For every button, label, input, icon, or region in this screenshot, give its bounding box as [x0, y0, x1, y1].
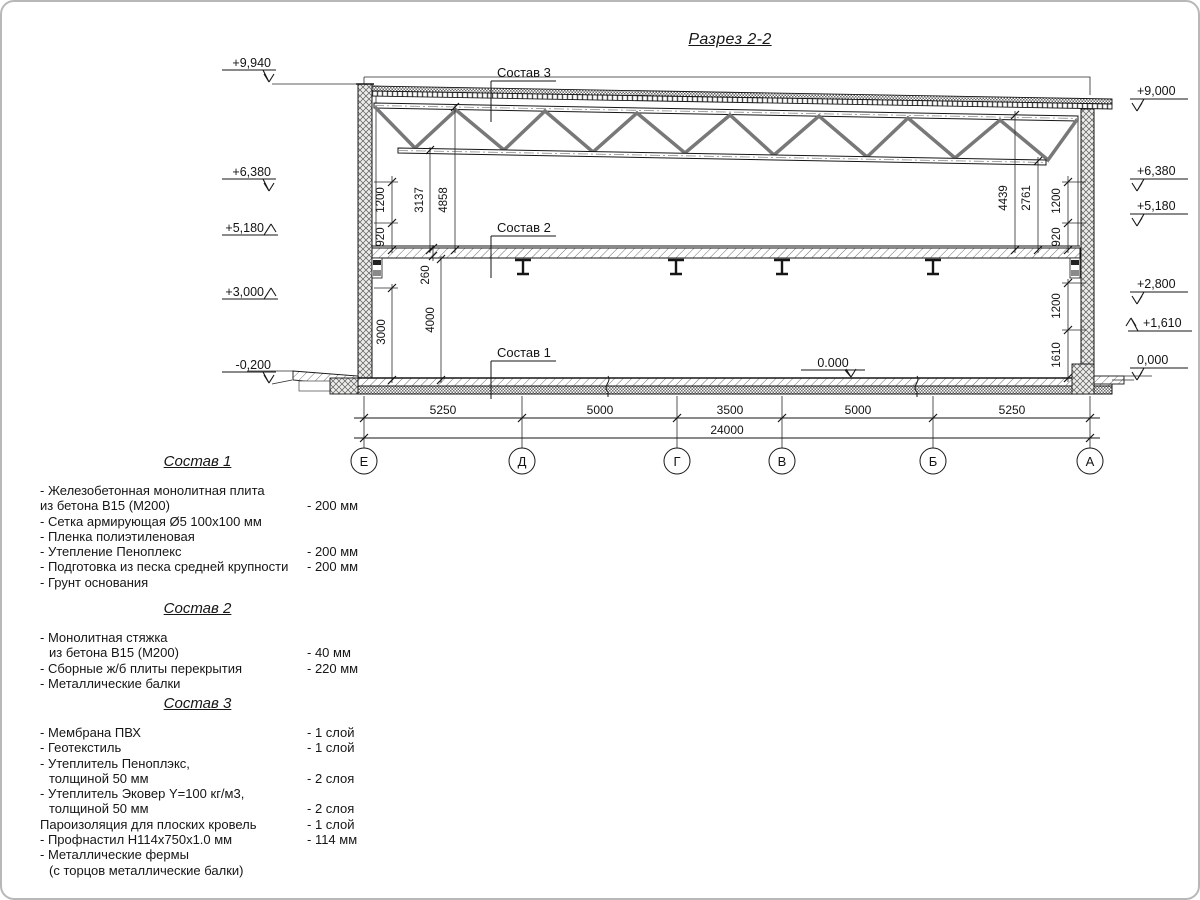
spec-row: - Сборные ж/б плиты перекрытия- 220 мм — [40, 661, 355, 676]
floor-zero-mark: 0.000 — [801, 356, 865, 377]
elevation-marks-right: +9,000 +6,380 +5,180 +2,800 +1,610 0,000 — [1112, 84, 1192, 380]
spec-item-value: - 220 мм — [307, 661, 358, 676]
elevation-mark: 0,000 — [1137, 353, 1168, 367]
steel-beam — [925, 260, 941, 274]
spec-row: - Металлические фермы — [40, 847, 355, 862]
elevation-mark: +6,380 — [1137, 164, 1176, 178]
spec-item-text: - Металлические фермы — [40, 847, 189, 862]
spec-row: толщиной 50 мм- 2 слоя — [40, 801, 355, 816]
dim-label: 5250 — [999, 403, 1026, 417]
spec-item-text: из бетона В15 (М200) — [40, 498, 170, 513]
dim-label: 4858 — [438, 187, 450, 213]
dim-label: 5000 — [845, 403, 872, 417]
spec-item-value: - 1 слой — [307, 740, 355, 755]
spec-item-text: толщиной 50 мм — [40, 771, 149, 786]
spec-block-sostav-1: Состав 1 - Железобетонная монолитная пли… — [40, 453, 355, 590]
spec-item-text: (с торцов металлические балки) — [40, 863, 244, 878]
spec-row: - Утеплитель Пеноплэкс, — [40, 756, 355, 771]
spec-item-text: Пароизоляция для плоских кровель — [40, 817, 257, 832]
dim-label: 920 — [375, 227, 387, 246]
spec-item-text: - Монолитная стяжка — [40, 630, 168, 645]
steel-beam — [515, 260, 531, 274]
dim-label: 1200 — [1051, 293, 1063, 319]
elevation-mark: +3,000 — [225, 285, 264, 299]
axis-bubbles: Е Д Г В Б А — [351, 448, 1103, 474]
spec-item-value: - 200 мм — [307, 498, 358, 513]
dim-label: 4000 — [425, 307, 437, 333]
spec-row: - Грунт основания — [40, 575, 355, 590]
elevation-mark: +1,610 — [1143, 316, 1182, 330]
spec-row: - Железобетонная монолитная плита — [40, 483, 355, 498]
elevation-mark: +9,940 — [232, 56, 271, 70]
dim-label: 260 — [420, 265, 432, 284]
left-wall — [356, 84, 376, 380]
floor-slab — [372, 246, 1080, 278]
dim-label: 3500 — [717, 403, 744, 417]
spec-row: - Утеплитель Эковер Y=100 кг/м3, — [40, 786, 355, 801]
elevation-mark: -0,200 — [236, 358, 271, 372]
elevation-mark: +6,380 — [232, 165, 271, 179]
spec-row: - Монолитная стяжка — [40, 630, 355, 645]
spec-item-text: - Пленка полиэтиленовая — [40, 529, 195, 544]
axis-label: Е — [360, 454, 369, 469]
spec-item-value: - 200 мм — [307, 559, 358, 574]
elevation-mark: 0.000 — [817, 356, 848, 370]
steel-beam — [774, 260, 790, 274]
dim-label: 1200 — [375, 187, 387, 213]
spec-item-text: толщиной 50 мм — [40, 801, 149, 816]
dims-bottom: 5250 5000 3500 5000 5250 24000 — [354, 396, 1100, 448]
elevation-mark: +5,180 — [1137, 199, 1176, 213]
spec-item-text: из бетона В15 (М200) — [40, 645, 179, 660]
spec-item-text: - Геотекстиль — [40, 740, 121, 755]
spec-row: - Профнастил Н114х750х1.0 мм- 114 мм — [40, 832, 355, 847]
spec-heading: Состав 2 — [40, 600, 355, 617]
right-wall — [1078, 109, 1094, 372]
dim-label: 1200 — [1051, 188, 1063, 214]
dim-label: 5000 — [587, 403, 614, 417]
spec-row: Пароизоляция для плоских кровель- 1 слой — [40, 817, 355, 832]
spec-item-text: - Сетка армирующая Ø5 100х100 мм — [40, 514, 262, 529]
elevation-mark: +9,000 — [1137, 84, 1176, 98]
spec-row: - Утепление Пеноплекс- 200 мм — [40, 544, 355, 559]
dim-label: 5250 — [430, 403, 457, 417]
spec-item-value: - 1 слой — [307, 817, 355, 832]
dims-left-wall: 1200 920 3000 — [374, 176, 398, 384]
spec-block-sostav-2: Состав 2 - Монолитная стяжка из бетона В… — [40, 600, 355, 691]
roof-truss — [374, 103, 1078, 165]
spec-heading: Состав 1 — [40, 453, 355, 470]
spec-item-value: - 200 мм — [307, 544, 358, 559]
axis-label: А — [1086, 454, 1095, 469]
spec-row: из бетона В15 (М200)- 200 мм — [40, 498, 355, 513]
spec-item-text: - Сборные ж/б плиты перекрытия — [40, 661, 242, 676]
spec-item-text: - Мембрана ПВХ — [40, 725, 141, 740]
axis-label: Г — [673, 454, 680, 469]
spec-item-text: - Профнастил Н114х750х1.0 мм — [40, 832, 232, 847]
dim-label: 3137 — [414, 187, 426, 213]
steel-beam — [668, 260, 684, 274]
dim-label: 4439 — [998, 185, 1010, 211]
dim-label: 3000 — [376, 319, 388, 345]
spec-row: - Сетка армирующая Ø5 100х100 мм — [40, 514, 355, 529]
axis-label: В — [778, 454, 787, 469]
spec-item-text: - Грунт основания — [40, 575, 148, 590]
elevation-marks-left: +9,940 +6,380 +5,180 +3,000 -0,200 — [222, 56, 358, 384]
elevation-mark: +5,180 — [225, 221, 264, 235]
spec-item-value: - 2 слоя — [307, 771, 354, 786]
spec-item-value: - 114 мм — [307, 832, 357, 847]
spec-row: - Геотекстиль- 1 слой — [40, 740, 355, 755]
dim-label: 2761 — [1021, 185, 1033, 211]
spec-row: - Металлические балки — [40, 676, 355, 691]
spec-item-value: - 1 слой — [307, 725, 355, 740]
leader-label: Состав 3 — [497, 65, 551, 80]
dim-label: 1610 — [1051, 342, 1063, 368]
spec-item-text: - Железобетонная монолитная плита — [40, 483, 265, 498]
elevation-mark: +2,800 — [1137, 277, 1176, 291]
dim-label: 920 — [1051, 227, 1063, 246]
spec-row: - Мембрана ПВХ- 1 слой — [40, 725, 355, 740]
ground-slab — [247, 364, 1152, 397]
spec-item-text: - Металлические балки — [40, 676, 180, 691]
spec-item-text: - Утеплитель Эковер Y=100 кг/м3, — [40, 786, 244, 801]
spec-row: из бетона В15 (М200)- 40 мм — [40, 645, 355, 660]
dims-inner-left: 3137 4858 260 4000 — [414, 103, 459, 384]
spec-block-sostav-3: Состав 3 - Мембрана ПВХ- 1 слой - Геотек… — [40, 695, 355, 878]
spec-row: толщиной 50 мм- 2 слоя — [40, 771, 355, 786]
leader-label: Состав 2 — [497, 220, 551, 235]
spec-row: - Подготовка из песка средней крупности-… — [40, 559, 355, 574]
axis-label: Б — [929, 454, 938, 469]
axis-label: Д — [518, 454, 527, 469]
dim-total-label: 24000 — [710, 423, 744, 437]
spec-item-text: - Утеплитель Пеноплэкс, — [40, 756, 190, 771]
spec-item-value: - 2 слоя — [307, 801, 354, 816]
spec-item-text: - Подготовка из песка средней крупности — [40, 559, 288, 574]
spec-heading: Состав 3 — [40, 695, 355, 712]
spec-row: (с торцов металлические балки) — [40, 863, 355, 878]
spec-item-value: - 40 мм — [307, 645, 351, 660]
beam-seat-right — [1070, 258, 1080, 278]
beam-seat-left — [372, 258, 382, 278]
dims-inner-right: 4439 2761 — [998, 111, 1042, 254]
leader-label: Состав 1 — [497, 345, 551, 360]
spec-item-text: - Утепление Пеноплекс — [40, 544, 182, 559]
spec-row: - Пленка полиэтиленовая — [40, 529, 355, 544]
